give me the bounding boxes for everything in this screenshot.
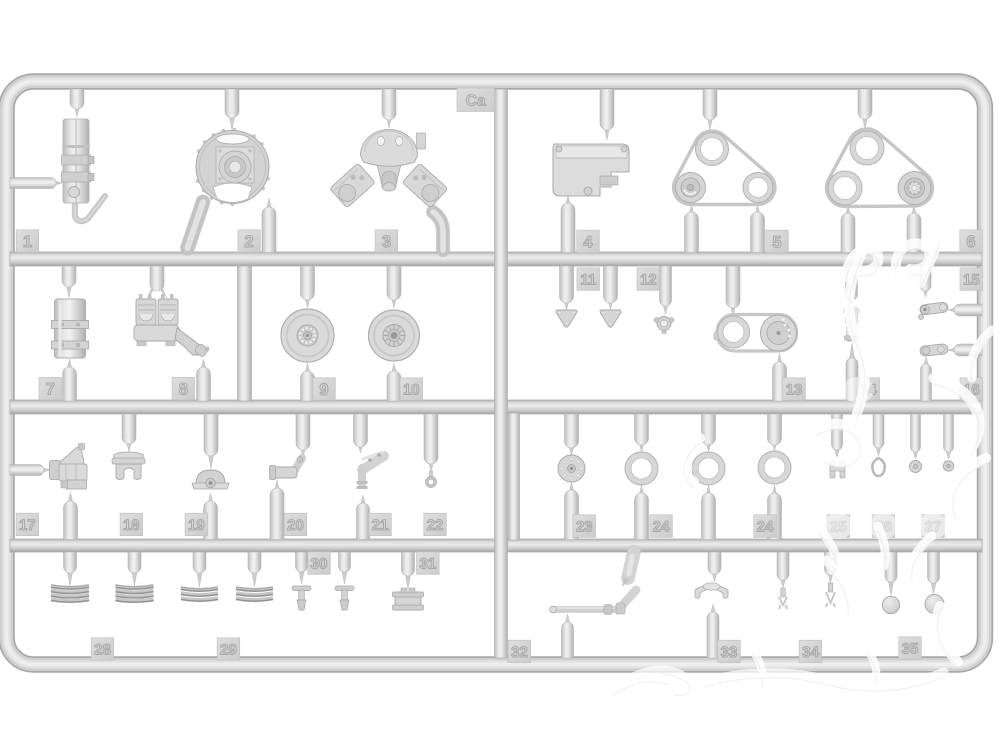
svg-text:20: 20 bbox=[287, 517, 304, 534]
svg-text:28: 28 bbox=[94, 641, 111, 658]
svg-text:9: 9 bbox=[319, 381, 328, 399]
svg-text:19: 19 bbox=[188, 517, 205, 534]
svg-text:3: 3 bbox=[382, 233, 391, 251]
svg-text:23: 23 bbox=[576, 518, 593, 535]
svg-text:4: 4 bbox=[583, 233, 593, 251]
svg-text:31: 31 bbox=[419, 555, 436, 572]
svg-text:2: 2 bbox=[244, 233, 253, 251]
svg-text:21: 21 bbox=[372, 517, 389, 534]
svg-text:17: 17 bbox=[19, 517, 36, 534]
svg-text:29: 29 bbox=[220, 641, 237, 658]
svg-text:33: 33 bbox=[721, 644, 738, 661]
svg-text:10: 10 bbox=[403, 381, 420, 398]
svg-text:32: 32 bbox=[511, 644, 528, 661]
svg-text:Ca: Ca bbox=[466, 93, 486, 110]
svg-text:8: 8 bbox=[179, 381, 188, 399]
svg-text:5: 5 bbox=[772, 233, 781, 251]
svg-text:30: 30 bbox=[311, 555, 328, 572]
svg-text:15: 15 bbox=[963, 271, 980, 288]
svg-text:12: 12 bbox=[640, 271, 657, 288]
svg-text:24: 24 bbox=[653, 518, 670, 535]
svg-text:34: 34 bbox=[802, 644, 819, 661]
svg-text:22: 22 bbox=[427, 517, 444, 534]
svg-text:18: 18 bbox=[123, 517, 140, 534]
svg-text:11: 11 bbox=[580, 271, 596, 288]
svg-text:13: 13 bbox=[786, 381, 803, 398]
svg-text:24: 24 bbox=[757, 518, 774, 535]
svg-text:6: 6 bbox=[966, 233, 975, 251]
svg-text:1: 1 bbox=[23, 233, 32, 251]
svg-text:35: 35 bbox=[902, 640, 919, 657]
svg-text:7: 7 bbox=[46, 381, 55, 399]
